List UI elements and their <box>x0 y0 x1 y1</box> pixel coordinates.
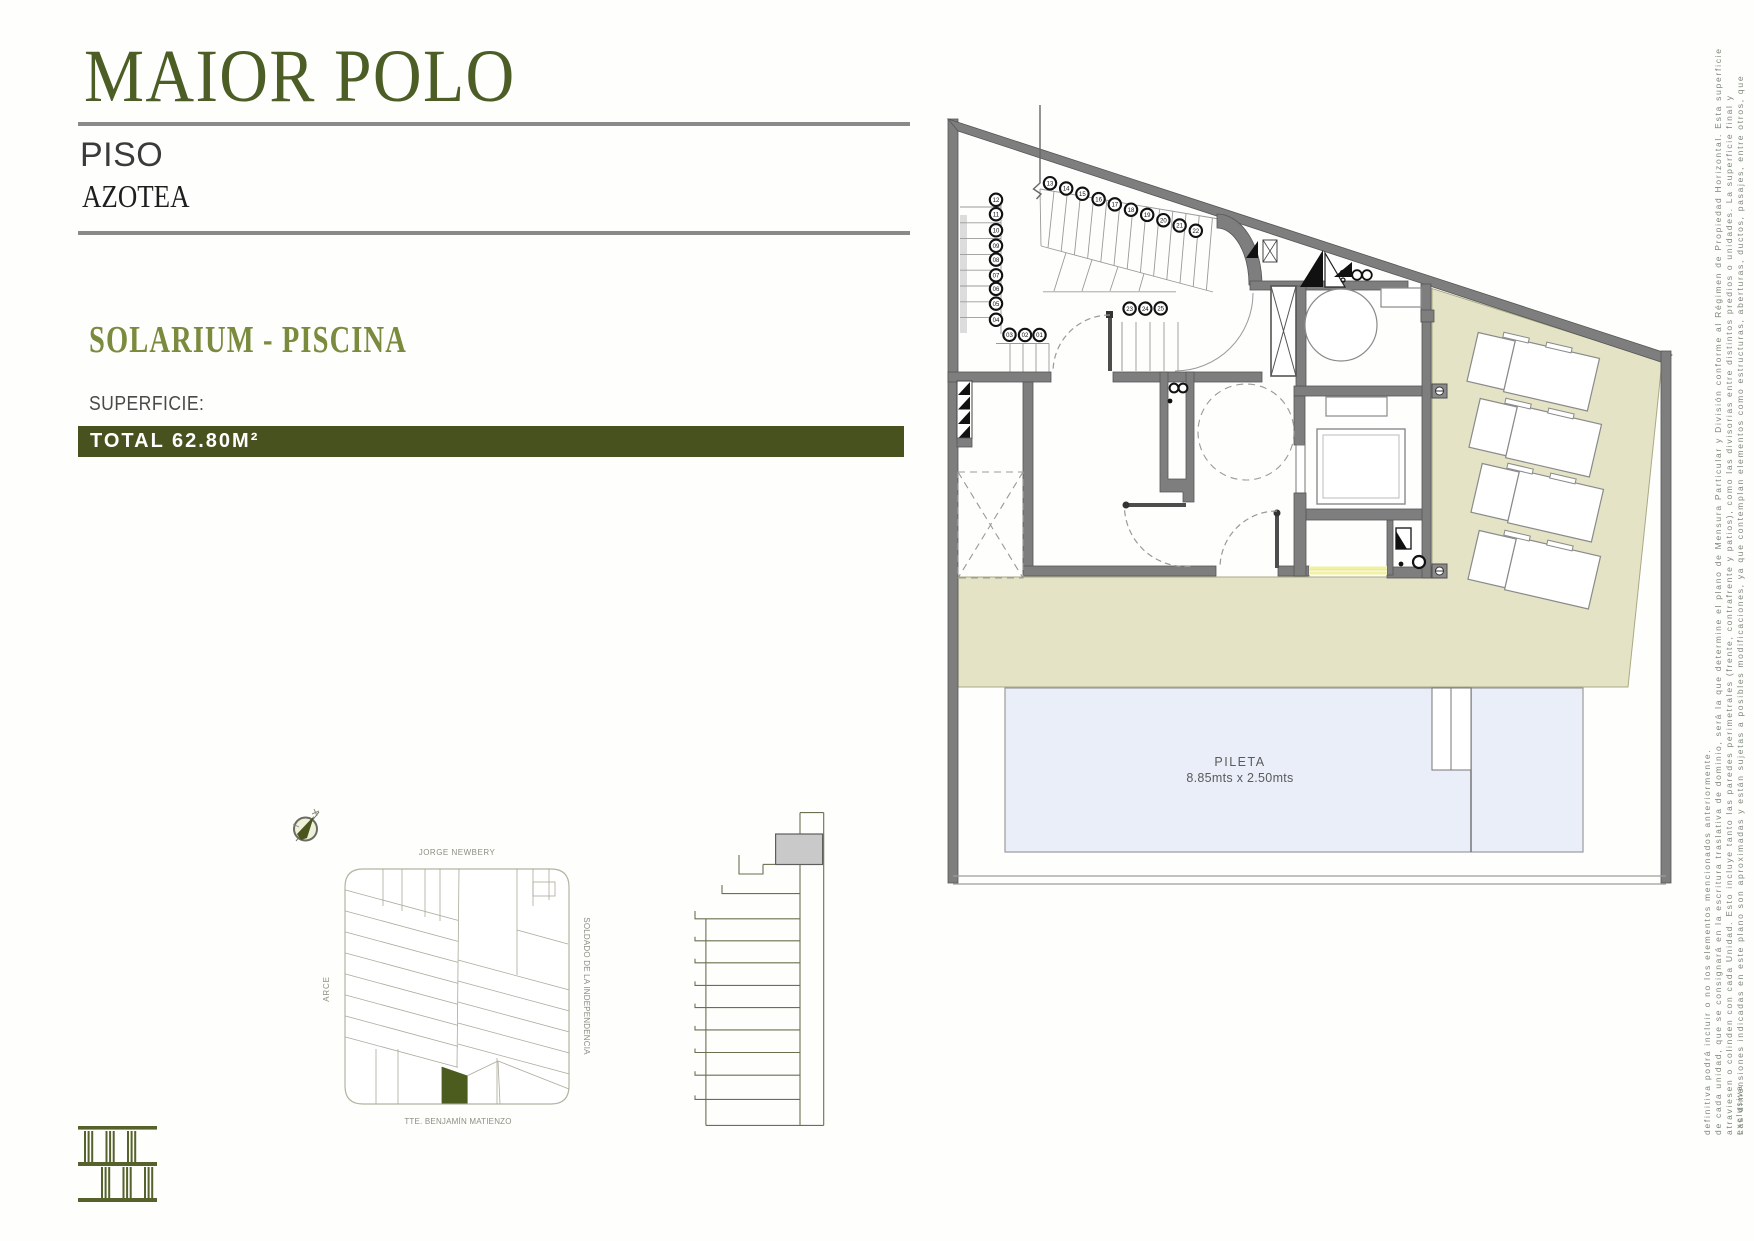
svg-text:23: 23 <box>1126 307 1133 313</box>
svg-text:06: 06 <box>993 287 1000 293</box>
svg-text:08: 08 <box>993 258 1000 264</box>
svg-text:21: 21 <box>1176 224 1183 230</box>
svg-text:8.85mts x 2.50mts: 8.85mts x 2.50mts <box>1186 771 1293 785</box>
svg-text:JORGE NEWBERY: JORGE NEWBERY <box>419 848 496 857</box>
svg-text:09: 09 <box>993 244 1000 250</box>
svg-text:PILETA: PILETA <box>1214 755 1265 769</box>
svg-text:18: 18 <box>1128 208 1135 214</box>
svg-text:01: 01 <box>1036 333 1043 339</box>
svg-text:24: 24 <box>1142 307 1149 313</box>
svg-text:02: 02 <box>1022 333 1029 339</box>
svg-text:ARCE: ARCE <box>322 976 331 1001</box>
svg-text:20: 20 <box>1160 218 1167 224</box>
svg-text:SOLDADO DE LA INDEPENDENCIA: SOLDADO DE LA INDEPENDENCIA <box>582 917 591 1055</box>
svg-text:22: 22 <box>1192 229 1199 235</box>
svg-text:07: 07 <box>993 274 1000 280</box>
svg-text:19: 19 <box>1144 213 1151 219</box>
svg-text:11: 11 <box>993 212 1000 218</box>
svg-text:TTE. BENJAMÍN MATIENZO: TTE. BENJAMÍN MATIENZO <box>404 1117 511 1126</box>
svg-text:13: 13 <box>1047 181 1054 187</box>
svg-text:14: 14 <box>1063 187 1070 193</box>
svg-text:05: 05 <box>993 302 1000 308</box>
svg-text:03: 03 <box>1006 333 1013 339</box>
svg-text:10: 10 <box>993 229 1000 235</box>
svg-text:04: 04 <box>993 318 1000 324</box>
svg-text:25: 25 <box>1157 307 1164 313</box>
svg-text:17: 17 <box>1111 203 1118 209</box>
svg-text:12: 12 <box>993 198 1000 204</box>
svg-text:16: 16 <box>1095 197 1102 203</box>
svg-text:15: 15 <box>1079 192 1086 198</box>
